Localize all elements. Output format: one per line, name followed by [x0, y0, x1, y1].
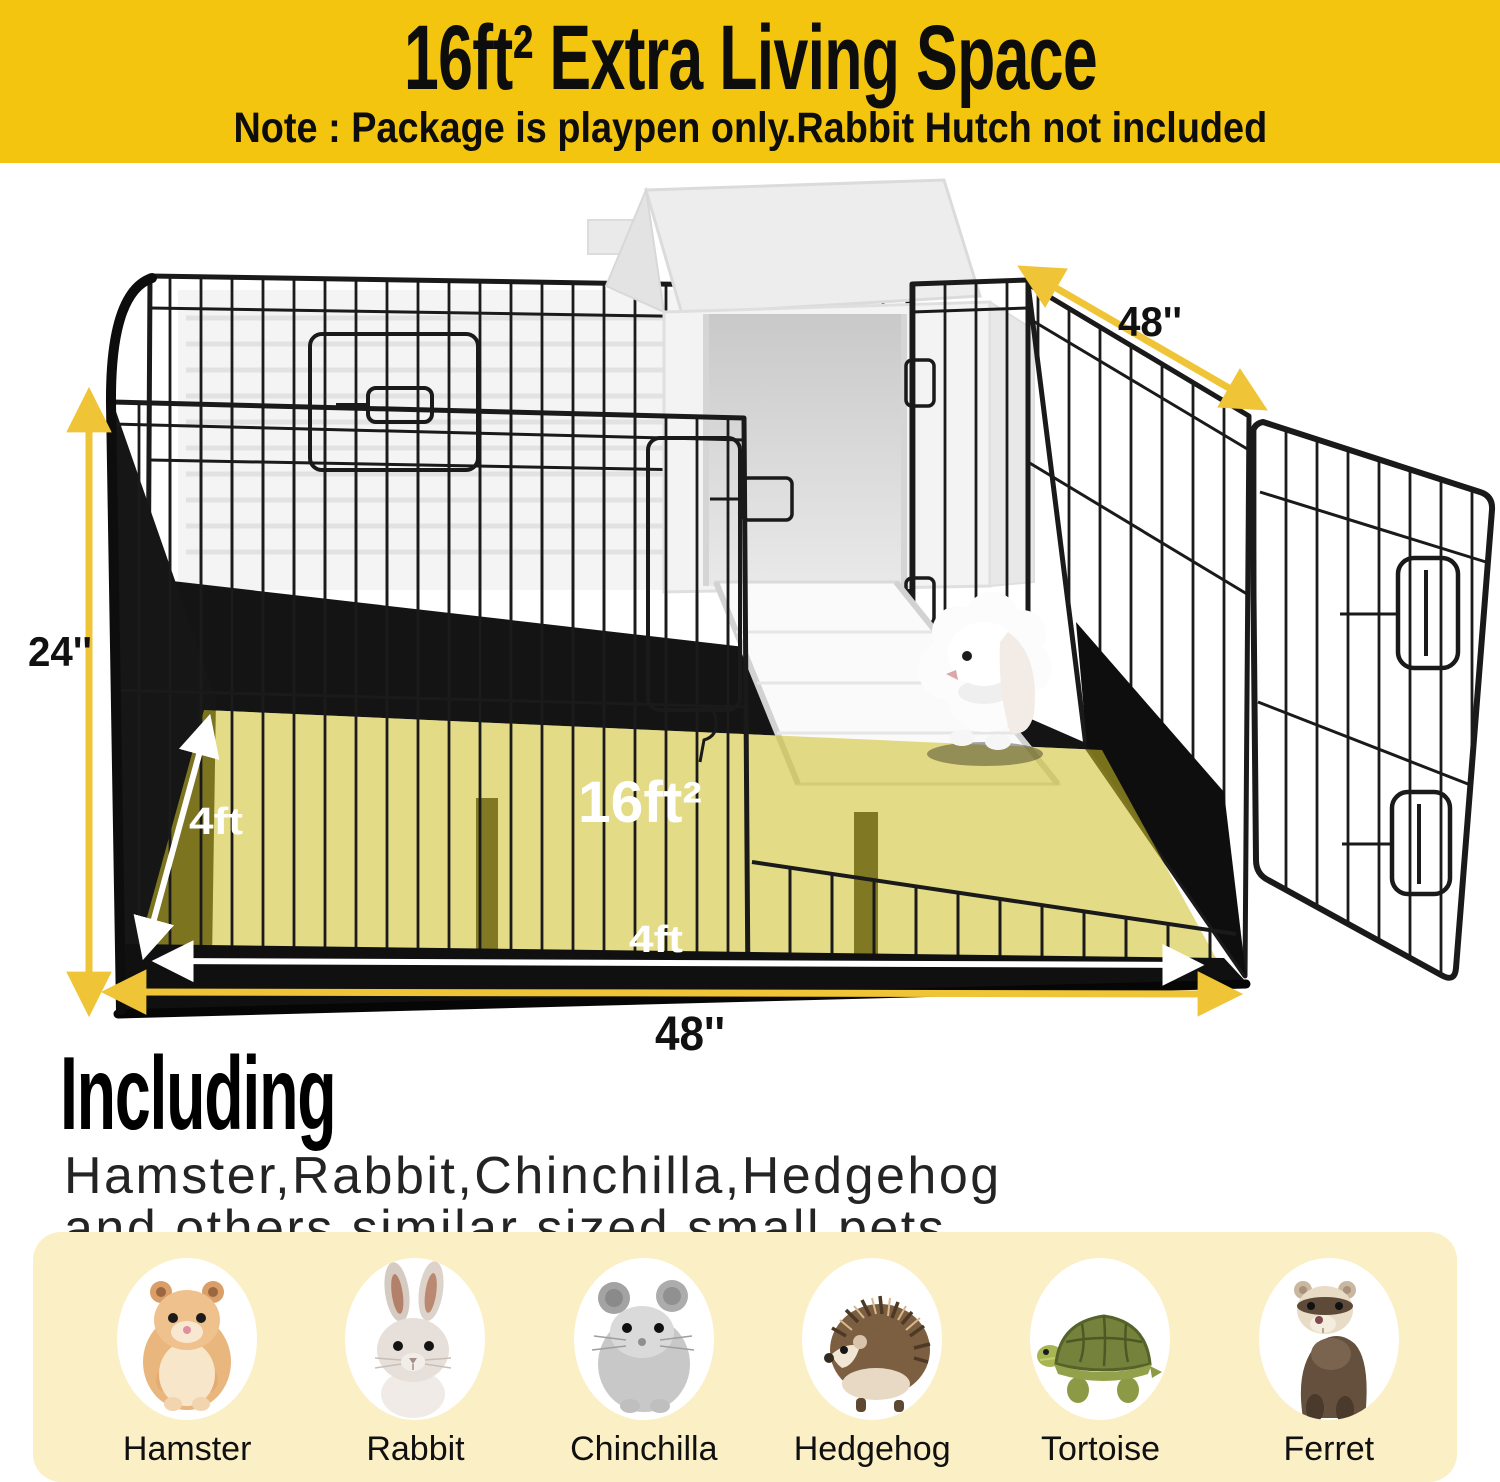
- pet-photo-tortoise: [1030, 1258, 1170, 1420]
- playpen-diagram: 48'' 24'' 48'' 16ft² 4ft 4ft: [0, 162, 1500, 1054]
- ferret-icon: [1259, 1258, 1399, 1420]
- pet-photo-ferret: [1259, 1258, 1399, 1420]
- pet-label-tortoise: Tortoise: [1041, 1430, 1160, 1469]
- pet-label-ferret: Ferret: [1283, 1430, 1374, 1469]
- pet-card-chinchilla: Chinchilla: [530, 1258, 758, 1469]
- floor-area-label: 16ft²: [578, 770, 702, 835]
- top-width-label: 48'': [1118, 298, 1182, 345]
- hamster-icon: [117, 1258, 257, 1420]
- pet-photo-hamster: [117, 1258, 257, 1420]
- pet-card-rabbit: Rabbit: [301, 1258, 529, 1469]
- pet-photo-rabbit: [345, 1258, 485, 1420]
- pet-card-ferret: Ferret: [1215, 1258, 1443, 1469]
- pet-label-hamster: Hamster: [123, 1430, 251, 1469]
- chinchilla-icon: [574, 1258, 714, 1420]
- playpen-front-panel: [112, 402, 792, 1010]
- pet-label-hedgehog: Hedgehog: [794, 1430, 951, 1469]
- including-line1: Hamster,Rabbit,Chinchilla,Hedgehog: [64, 1150, 1002, 1202]
- banner-title: 16ft² Extra Living Space: [404, 12, 1097, 104]
- open-door-panel: [1252, 422, 1492, 978]
- playpen-diagram-area: 48'' 24'' 48'' 16ft² 4ft 4ft: [0, 162, 1500, 1059]
- pet-card-tortoise: Tortoise: [986, 1258, 1214, 1469]
- rabbit-icon: [345, 1258, 485, 1420]
- floor-width-label: 4ft: [629, 919, 683, 961]
- floor-depth-label: 4ft: [189, 801, 243, 843]
- banner-note: Note : Package is playpen only.Rabbit Hu…: [233, 104, 1267, 153]
- pet-photo-hedgehog: [802, 1258, 942, 1420]
- height-label: 24'': [28, 628, 92, 675]
- dimension-arrow-floor-width: [160, 961, 1196, 965]
- including-heading: Including: [60, 1042, 335, 1146]
- pet-types-panel: Hamster Rabbit: [33, 1232, 1457, 1482]
- hedgehog-icon: [802, 1258, 942, 1420]
- pet-label-rabbit: Rabbit: [366, 1430, 464, 1469]
- tortoise-icon: [1030, 1258, 1170, 1420]
- pet-card-hedgehog: Hedgehog: [758, 1258, 986, 1469]
- pet-photo-chinchilla: [574, 1258, 714, 1420]
- pet-label-chinchilla: Chinchilla: [570, 1430, 717, 1469]
- promo-banner: 16ft² Extra Living Space Note : Package …: [0, 0, 1500, 163]
- dimension-arrow-bottom-width: [110, 992, 1234, 994]
- bottom-width-label: 48'': [655, 1008, 725, 1054]
- pet-card-hamster: Hamster: [73, 1258, 301, 1469]
- product-infographic-page: 16ft² Extra Living Space Note : Package …: [0, 0, 1500, 1482]
